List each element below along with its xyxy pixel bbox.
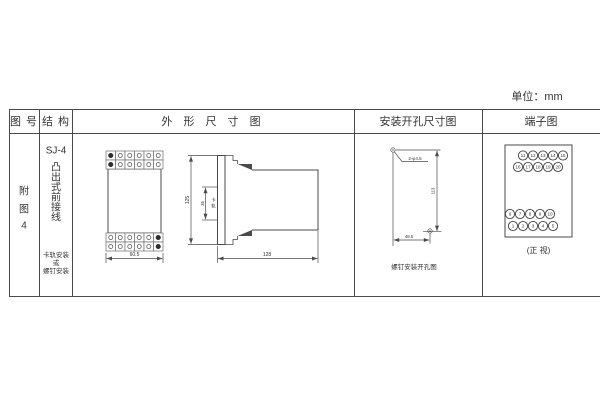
holes-label: 2-φ4.5 xyxy=(408,156,422,161)
terminal-number: 15 xyxy=(560,153,566,158)
terminal-number: 3 xyxy=(532,224,535,229)
front-view-drawing: 60.5 xyxy=(106,151,163,263)
terminal-number: 13 xyxy=(540,153,546,158)
terminal-number: 11 xyxy=(521,153,526,158)
terminal-number: 16 xyxy=(515,165,521,170)
terminal-number: 8 xyxy=(529,212,532,217)
datasheet-page: 单位：mm 图 号 结 构 外 形 尺 寸 图 安装开孔尺寸图 端子图 附 图 … xyxy=(0,0,600,400)
terminal-number: 1 xyxy=(512,224,515,229)
terminal-number: 9 xyxy=(539,212,542,217)
technical-drawing: 60.5 125 35 卡 轨 128 xyxy=(0,0,600,400)
terminal-number: 20 xyxy=(555,165,561,170)
front-terminal-grids xyxy=(106,151,163,251)
rail-label-char-1: 卡 xyxy=(211,197,216,204)
terminal-number: 2 xyxy=(522,224,525,229)
terminal-number: 6 xyxy=(509,212,512,217)
side-view-drawing: 125 35 卡 轨 128 xyxy=(185,156,318,264)
rail-label-char-2: 轨 xyxy=(211,203,216,210)
terminal-number: 17 xyxy=(525,165,531,170)
terminal-number: 18 xyxy=(535,165,541,170)
terminal-number: 4 xyxy=(542,224,545,229)
mounting-vertical-dim: 113 xyxy=(431,187,436,194)
mounting-horizontal-dim: 48.5 xyxy=(405,234,414,239)
rail-slot-dim: 35 xyxy=(200,201,205,206)
terminal-caption: (正 视) xyxy=(527,245,551,255)
mounting-caption: 螺钉安装开孔图 xyxy=(391,262,437,271)
side-depth-dim: 128 xyxy=(263,252,272,258)
terminal-number: 19 xyxy=(545,165,551,170)
terminal-number: 12 xyxy=(530,153,536,158)
terminal-number: 14 xyxy=(550,153,556,158)
terminal-number: 10 xyxy=(547,212,553,217)
side-height-dim: 125 xyxy=(185,196,191,205)
mounting-hole-drawing: 2-φ4.5 113 48.5 螺钉安装开孔图 xyxy=(391,148,442,271)
terminal-number: 5 xyxy=(552,224,555,229)
terminal-number: 7 xyxy=(519,212,522,217)
front-width-dim: 60.5 xyxy=(130,252,140,258)
terminal-diagram: 11 12 13 14 15 16 17 18 19 20 6 7 8 9 10… xyxy=(505,145,572,255)
